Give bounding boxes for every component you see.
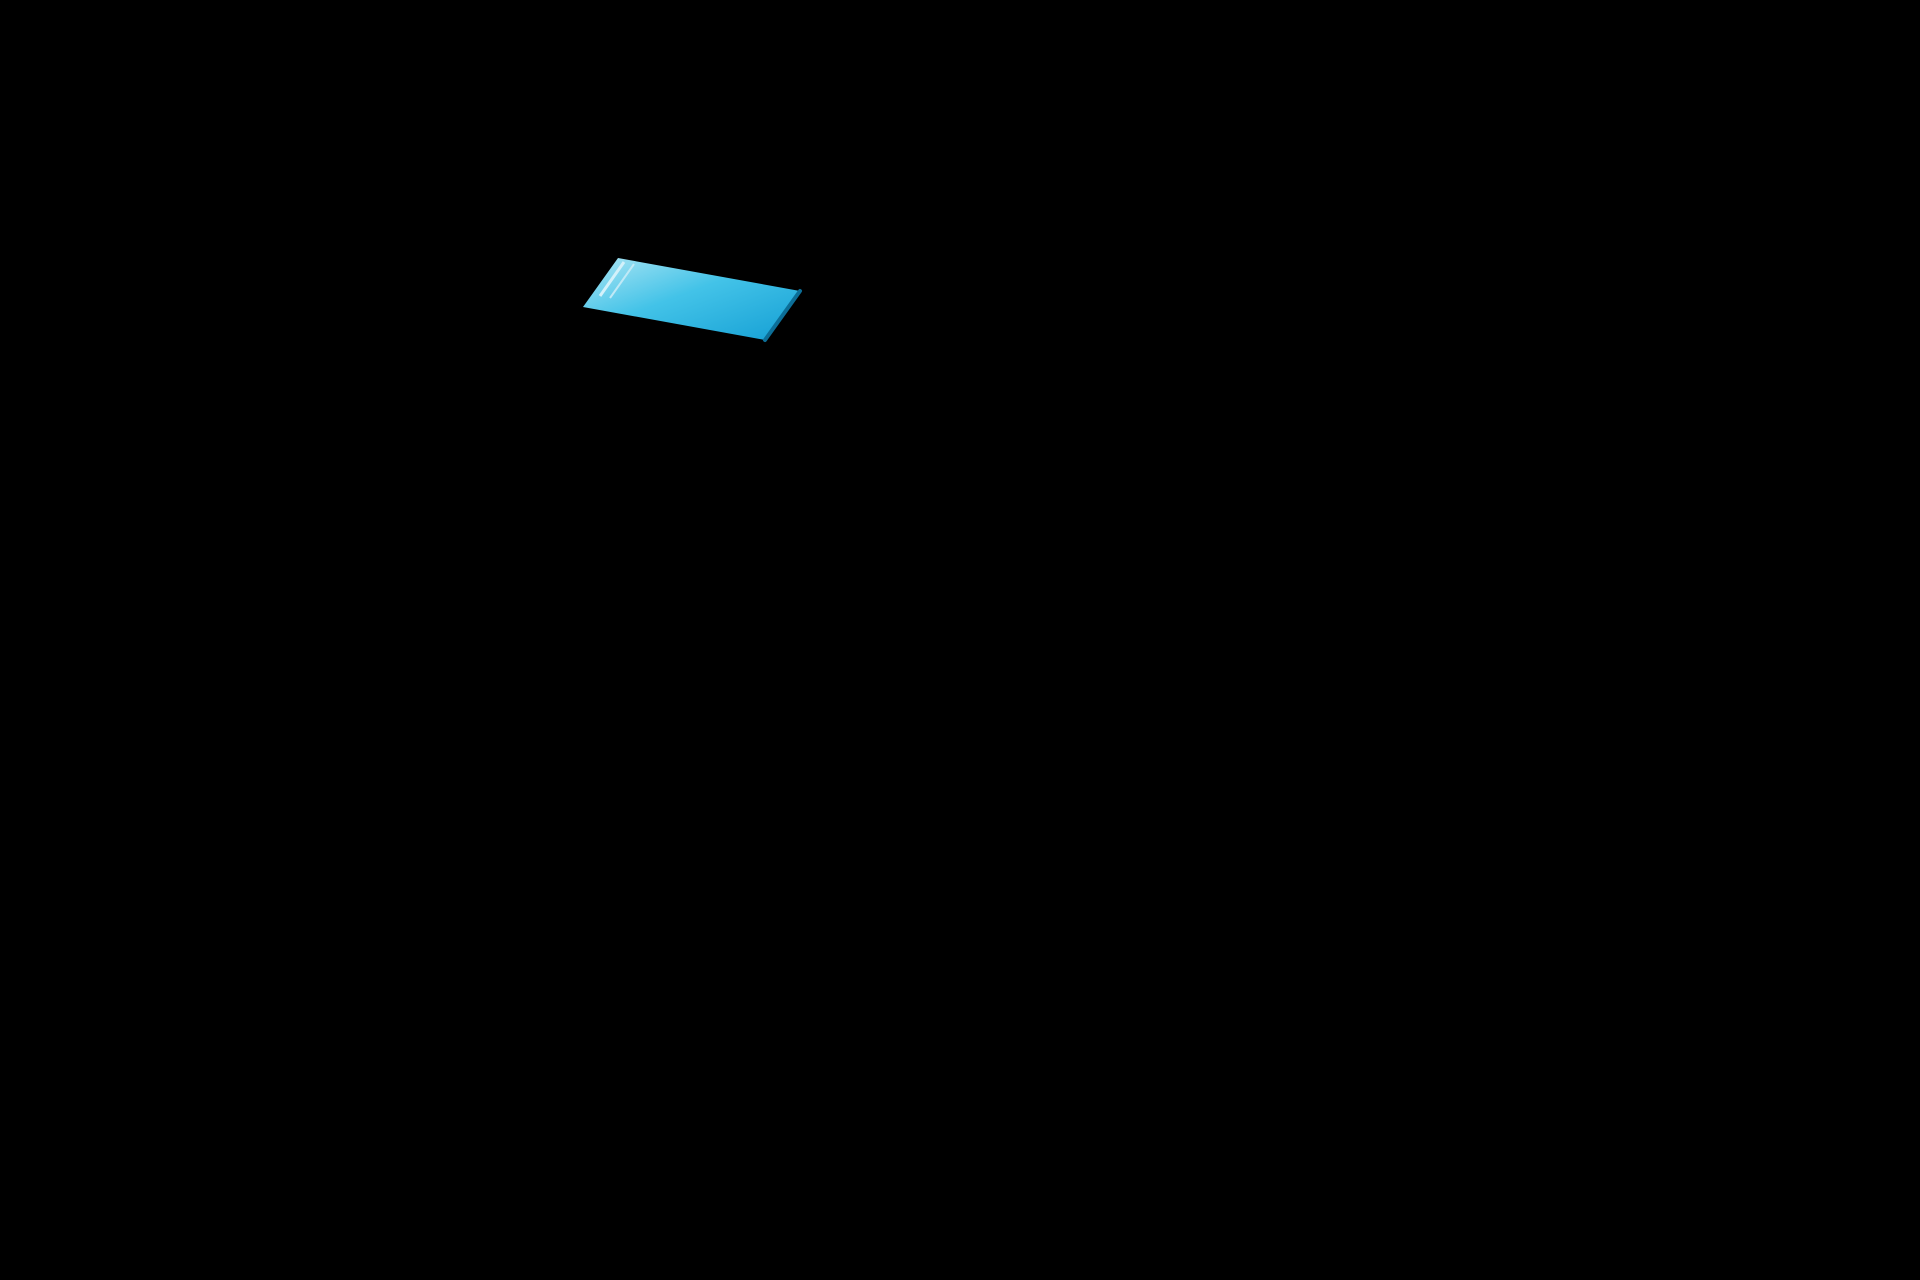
site-render bbox=[0, 0, 1920, 1280]
render-canvas bbox=[0, 0, 1920, 1280]
